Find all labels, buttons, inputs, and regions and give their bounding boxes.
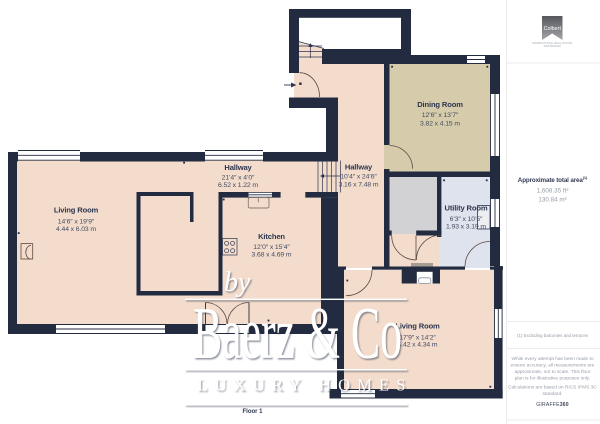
svg-text:1.93 x 3.19 m: 1.93 x 3.19 m	[446, 224, 486, 231]
svg-text:12’0″ x 15’4″: 12’0″ x 15’4″	[253, 244, 290, 251]
svg-text:3.68 x 4.69 m: 3.68 x 4.69 m	[252, 252, 292, 259]
svg-text:Living Room: Living Room	[395, 322, 440, 331]
svg-text:1,608.35 ft²: 1,608.35 ft²	[537, 188, 569, 195]
svg-text:Living Room: Living Room	[54, 206, 99, 215]
svg-text:3.16 x 7.48 m: 3.16 x 7.48 m	[339, 182, 379, 189]
svg-text:130.84 m²: 130.84 m²	[538, 197, 566, 204]
svg-text:6’3″ x 10’5″: 6’3″ x 10’5″	[450, 216, 483, 223]
svg-text:standard.: standard.	[542, 391, 562, 397]
svg-text:Colbert: Colbert	[544, 26, 562, 32]
svg-text:5.42 x 4.34 m: 5.42 x 4.34 m	[398, 342, 438, 349]
svg-text:Calculations are based on RICS: Calculations are based on RICS IPMS 3C	[508, 385, 597, 391]
svg-text:12’6″ x 13’7″: 12’6″ x 13’7″	[422, 112, 459, 119]
svg-text:14’6″ x 19’9″: 14’6″ x 19’9″	[58, 218, 95, 225]
svg-text:Baerz & Co: Baerz & Co	[193, 293, 402, 375]
svg-text:AMSTERDAM: AMSTERDAM	[544, 45, 561, 48]
svg-text:Floor 1: Floor 1	[242, 409, 263, 415]
svg-text:17’9″ x 14’2″: 17’9″ x 14’2″	[399, 335, 436, 342]
svg-text:GIRAFFE360: GIRAFFE360	[536, 402, 569, 408]
svg-text:While every attempt has been m: While every attempt has been made to	[511, 356, 593, 362]
svg-text:Hallway: Hallway	[345, 163, 373, 172]
svg-text:Kitchen: Kitchen	[258, 232, 285, 241]
svg-text:6.52 x 1.22 m: 6.52 x 1.22 m	[218, 182, 258, 189]
svg-text:4.44 x 6.03 m: 4.44 x 6.03 m	[56, 226, 96, 233]
svg-text:21’4″ x 4’0″: 21’4″ x 4’0″	[222, 175, 255, 182]
svg-text:Approximate total area(1): Approximate total area(1)	[518, 175, 588, 184]
svg-text:Hallway: Hallway	[224, 163, 252, 172]
svg-text:(1) Excluding balconies and te: (1) Excluding balconies and terraces	[517, 333, 589, 338]
svg-text:plan is for illustrative purpo: plan is for illustrative purposes only.	[515, 376, 591, 382]
svg-text:Utility Room: Utility Room	[445, 204, 488, 213]
svg-text:Dining Room: Dining Room	[417, 100, 463, 109]
svg-text:approximate, not to scale. Thi: approximate, not to scale. This floor	[515, 369, 591, 375]
svg-text:3.82 x 4.15 m: 3.82 x 4.15 m	[420, 121, 460, 128]
svg-text:10’4″ x 24’6″: 10’4″ x 24’6″	[340, 174, 377, 181]
svg-text:ensure accuracy, all measureme: ensure accuracy, all measurements are	[511, 363, 595, 369]
